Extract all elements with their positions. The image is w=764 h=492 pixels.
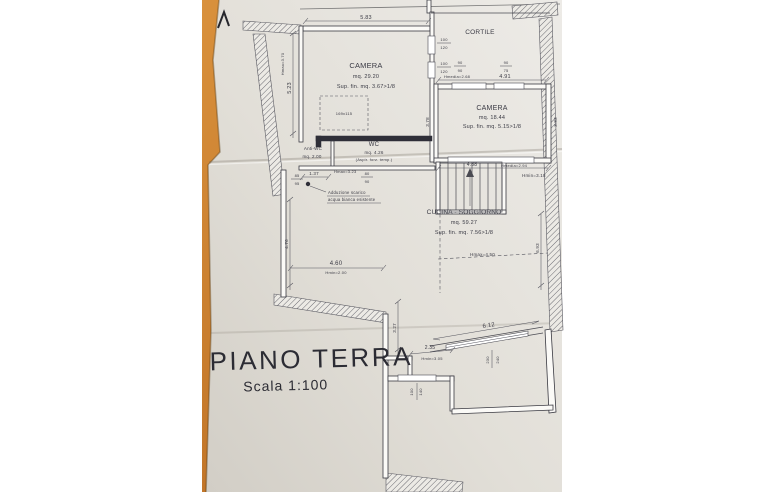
camera2-window-ratio-label: Sup. fin. mq. 5.15>1/8 — [463, 124, 521, 130]
dim-extension-step-label: 2.35 — [425, 345, 436, 351]
antiwc-bottom-wall — [299, 166, 435, 170]
dim-stairs-hmin-label: Hmin=3.18 — [522, 173, 546, 178]
window-label-7-h: 240 — [495, 356, 500, 364]
plan-scale: Scala 1:100 — [243, 376, 328, 394]
window-label-5-w: 85 — [295, 173, 300, 178]
camera2-window-2 — [494, 83, 524, 89]
dim-camera2-right-label: 3.83 — [553, 117, 558, 127]
window-label-3-w: 90 — [458, 60, 463, 65]
photo-of-floorplan-page: CAMERA mq. 29.20 Sup. fin. mq. 3.67>1/8 … — [0, 0, 764, 492]
window-label-8-w: 100 — [409, 388, 414, 396]
dim-top-label: 5.83 — [360, 15, 372, 21]
note-marker-dot — [306, 182, 310, 186]
furniture-size-label: 169x115 — [336, 111, 353, 116]
dim-antiwc-label: 1.37 — [309, 171, 319, 176]
note-line2: acqua bianca esistente — [328, 197, 376, 202]
window-label-4-h: 75 — [504, 68, 509, 73]
extension-left-wall — [383, 314, 388, 478]
plan-title: PIANO TERRA — [209, 341, 413, 376]
dim-camera2-bottom-label: 4.88 — [467, 162, 478, 168]
camera2-area-label: mq. 18.44 — [479, 115, 505, 121]
wc-name-label: WC — [369, 142, 380, 148]
window-label-4-w: 90 — [504, 60, 509, 65]
dim-camera2-top-label: 4.91 — [499, 74, 511, 80]
note-height-label: Hmax=3.23 — [334, 169, 357, 174]
window-label-2-h: 120 — [440, 69, 448, 74]
dim-cucina-hmax-label: Hmax=4.50 — [470, 252, 495, 257]
cortile-window-2 — [428, 62, 435, 78]
cortile-top-stub-wall — [427, 0, 431, 13]
dim-cucina-right-label: 6.93 — [535, 243, 540, 253]
dim-cucina-bottom-hmin-label: Hmin=2.00 — [325, 270, 347, 275]
window-label-3-h: 90 — [458, 68, 463, 73]
camera2-top-wall — [434, 84, 550, 89]
cortile-name-label: CORTILE — [465, 29, 495, 36]
window-label-5-h: 95 — [295, 181, 300, 186]
camera1-area-label: mq. 29.20 — [353, 74, 379, 80]
dim-camera2-bottom-hmedia-label: Hmedia=2.94 — [501, 163, 528, 168]
camera1-window-ratio-label: Sup. fin. mq. 3.67>1/8 — [337, 84, 395, 90]
window-label-8-h: 140 — [418, 388, 423, 396]
antiwc-area-label: mq. 2.00 — [302, 154, 321, 159]
camera2-left-wall — [434, 84, 438, 163]
extension-bottom-window — [398, 375, 436, 381]
camera1-top-wall — [303, 26, 430, 31]
camera2-right-wall — [546, 84, 551, 163]
wc-area-label: mq. 4.26 — [364, 150, 383, 155]
dim-left-hmax-label: Hmax=3.70 — [280, 52, 285, 75]
wc-vent-note-label: (Aspir. forz. temp.) — [356, 157, 393, 162]
cucina-left-wall — [281, 170, 286, 297]
dim-camera2-left-label: 3.78 — [425, 117, 430, 127]
dim-left-label: 5.23 — [287, 82, 293, 94]
camera1-left-wall — [299, 26, 303, 142]
wc-top-wall — [316, 136, 432, 141]
stairs-right-wall — [502, 162, 506, 214]
cucina-name-label: CUCINA - SOGGIORNO — [427, 209, 502, 216]
antiwc-name-label: Anti-WC — [304, 146, 323, 151]
extension-inner-wall — [450, 376, 454, 411]
window-label-1-w: 100 — [440, 37, 448, 42]
dim-extension-step-hmin-label: Hmin=3.05 — [421, 356, 443, 361]
window-label-7-w: 230 — [485, 356, 490, 364]
window-label-6-w: 80 — [365, 171, 370, 176]
camera2-window-1 — [452, 83, 486, 89]
window-label-6-h: 90 — [365, 179, 370, 184]
cucina-area-label: mq. 59.27 — [451, 220, 477, 226]
cucina-window-ratio-label: Sup. fin. mq. 7.56>1/8 — [435, 230, 493, 236]
note-line1: Adduzione scarico — [328, 190, 366, 195]
window-label-2-w: 100 — [440, 61, 448, 66]
floorplan-scene: CAMERA mq. 29.20 Sup. fin. mq. 3.67>1/8 … — [0, 0, 764, 492]
camera2-name-label: CAMERA — [476, 105, 507, 112]
dim-extension-left-label: 3.27 — [392, 323, 397, 333]
camera1-name-label: CAMERA — [349, 61, 382, 70]
stairs-left-wall — [436, 162, 440, 214]
dim-cucina-left-label: 4.76 — [284, 239, 289, 249]
cortile-window-1 — [428, 36, 435, 54]
window-label-1-h: 120 — [440, 45, 448, 50]
dim-cucina-bottom-label: 4.60 — [330, 261, 343, 267]
dim-camera2-top-hmedia-label: Hmedia=2.68 — [444, 74, 471, 79]
wc-antiwc-divider — [331, 141, 334, 168]
